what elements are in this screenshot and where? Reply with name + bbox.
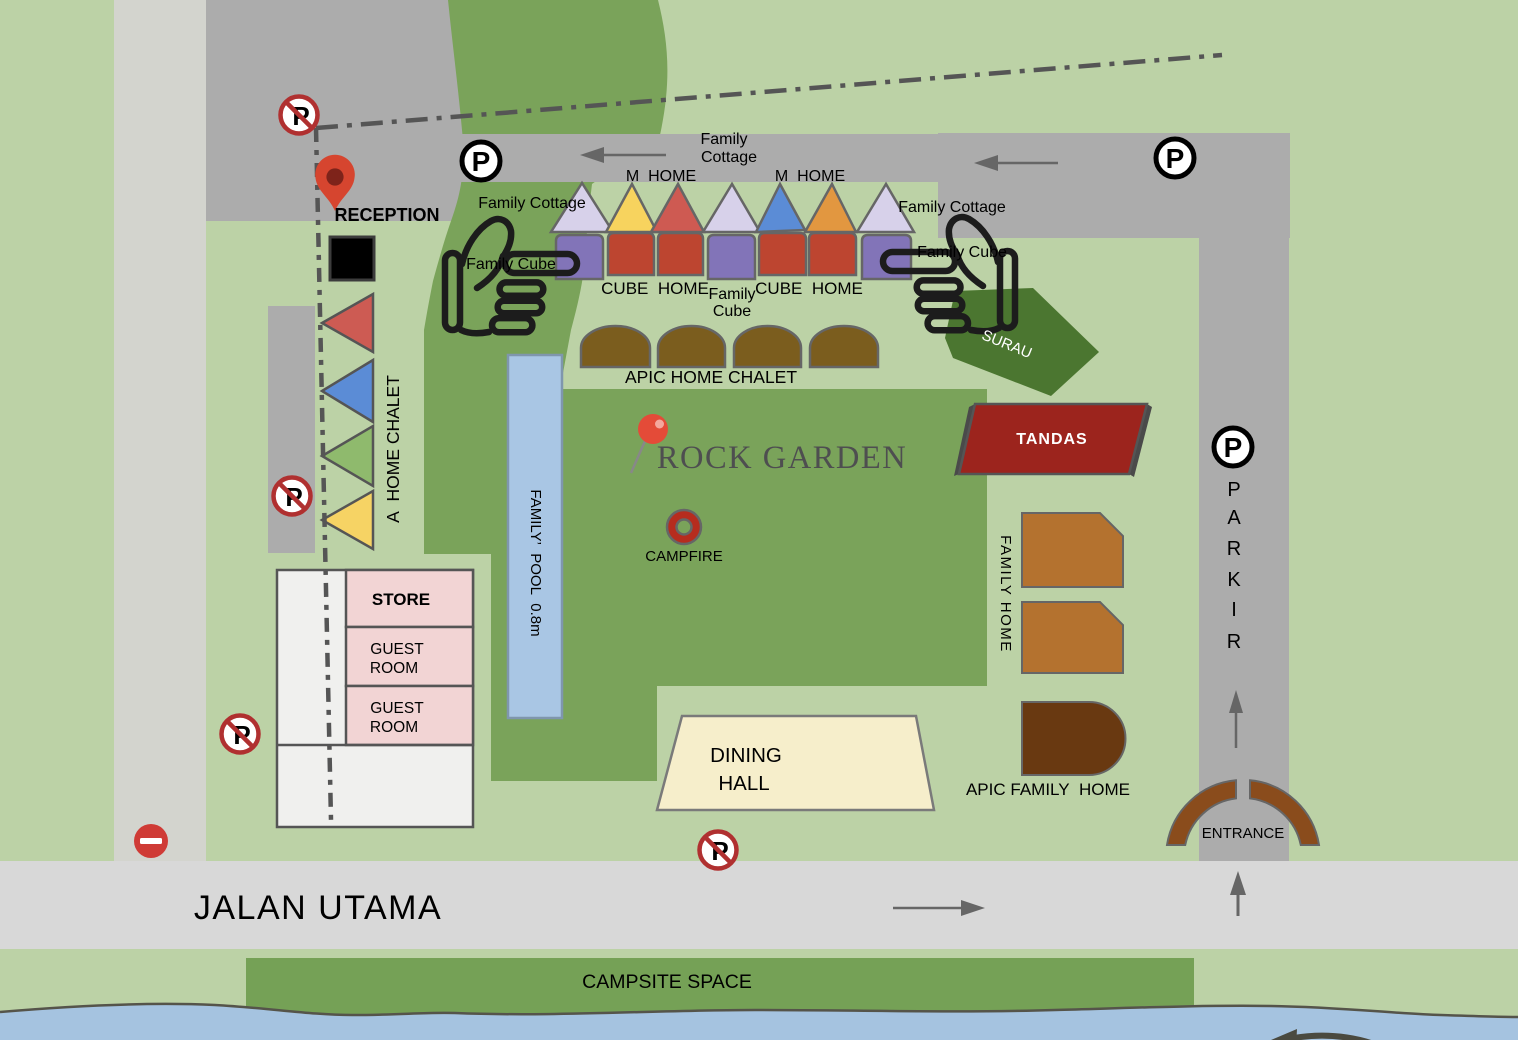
svg-text:P: P: [1227, 479, 1240, 501]
svg-text:A: A: [1227, 507, 1241, 529]
svg-text:ROOM: ROOM: [370, 719, 418, 736]
svg-text:K: K: [1227, 569, 1241, 591]
svg-text:Family Cottage: Family Cottage: [478, 195, 586, 212]
svg-text:STORE: STORE: [372, 590, 430, 609]
svg-text:APIC FAMILY HOME: APIC FAMILY HOME: [966, 780, 1130, 799]
svg-text:CUBE HOME: CUBE HOME: [755, 279, 863, 298]
svg-text:Family Cube: Family Cube: [917, 244, 1007, 261]
svg-text:ENTRANCE: ENTRANCE: [1202, 825, 1285, 842]
svg-text:P: P: [1166, 143, 1185, 174]
svg-text:HALL: HALL: [718, 772, 769, 795]
svg-text:CAMPSITE SPACE: CAMPSITE SPACE: [582, 971, 752, 993]
svg-text:ROOM: ROOM: [370, 660, 418, 677]
svg-text:P: P: [472, 146, 491, 177]
svg-text:Family Cube: Family Cube: [466, 256, 556, 273]
svg-text:Cottage: Cottage: [701, 149, 757, 166]
svg-text:Family: Family: [700, 131, 747, 148]
svg-text:FAMILY’ POOL 0.8m: FAMILY’ POOL 0.8m: [527, 489, 544, 636]
svg-text:ROCK GARDEN: ROCK GARDEN: [657, 440, 907, 476]
svg-text:RECEPTION: RECEPTION: [334, 205, 439, 225]
svg-text:FAMILY HOME: FAMILY HOME: [997, 535, 1014, 653]
svg-text:CUBE HOME: CUBE HOME: [601, 279, 709, 298]
svg-text:P: P: [1224, 432, 1243, 463]
svg-text:GUEST: GUEST: [370, 641, 424, 658]
svg-text:GUEST: GUEST: [370, 700, 424, 717]
svg-text:A HOME CHALET: A HOME CHALET: [383, 375, 403, 523]
svg-text:I: I: [1231, 599, 1237, 621]
svg-text:R: R: [1227, 631, 1241, 653]
svg-text:DINING: DINING: [710, 744, 782, 767]
svg-text:TANDAS: TANDAS: [1016, 431, 1087, 448]
svg-text:Cube: Cube: [713, 303, 751, 320]
svg-text:M HOME: M HOME: [626, 168, 696, 185]
svg-text:APIC HOME CHALET: APIC HOME CHALET: [625, 367, 797, 387]
svg-text:CAMPFIRE: CAMPFIRE: [645, 548, 723, 565]
svg-text:Family: Family: [708, 286, 755, 303]
svg-text:Family Cottage: Family Cottage: [898, 199, 1006, 216]
svg-text:JALAN UTAMA: JALAN UTAMA: [194, 889, 442, 927]
svg-text:M HOME: M HOME: [775, 168, 845, 185]
svg-text:R: R: [1227, 538, 1241, 560]
